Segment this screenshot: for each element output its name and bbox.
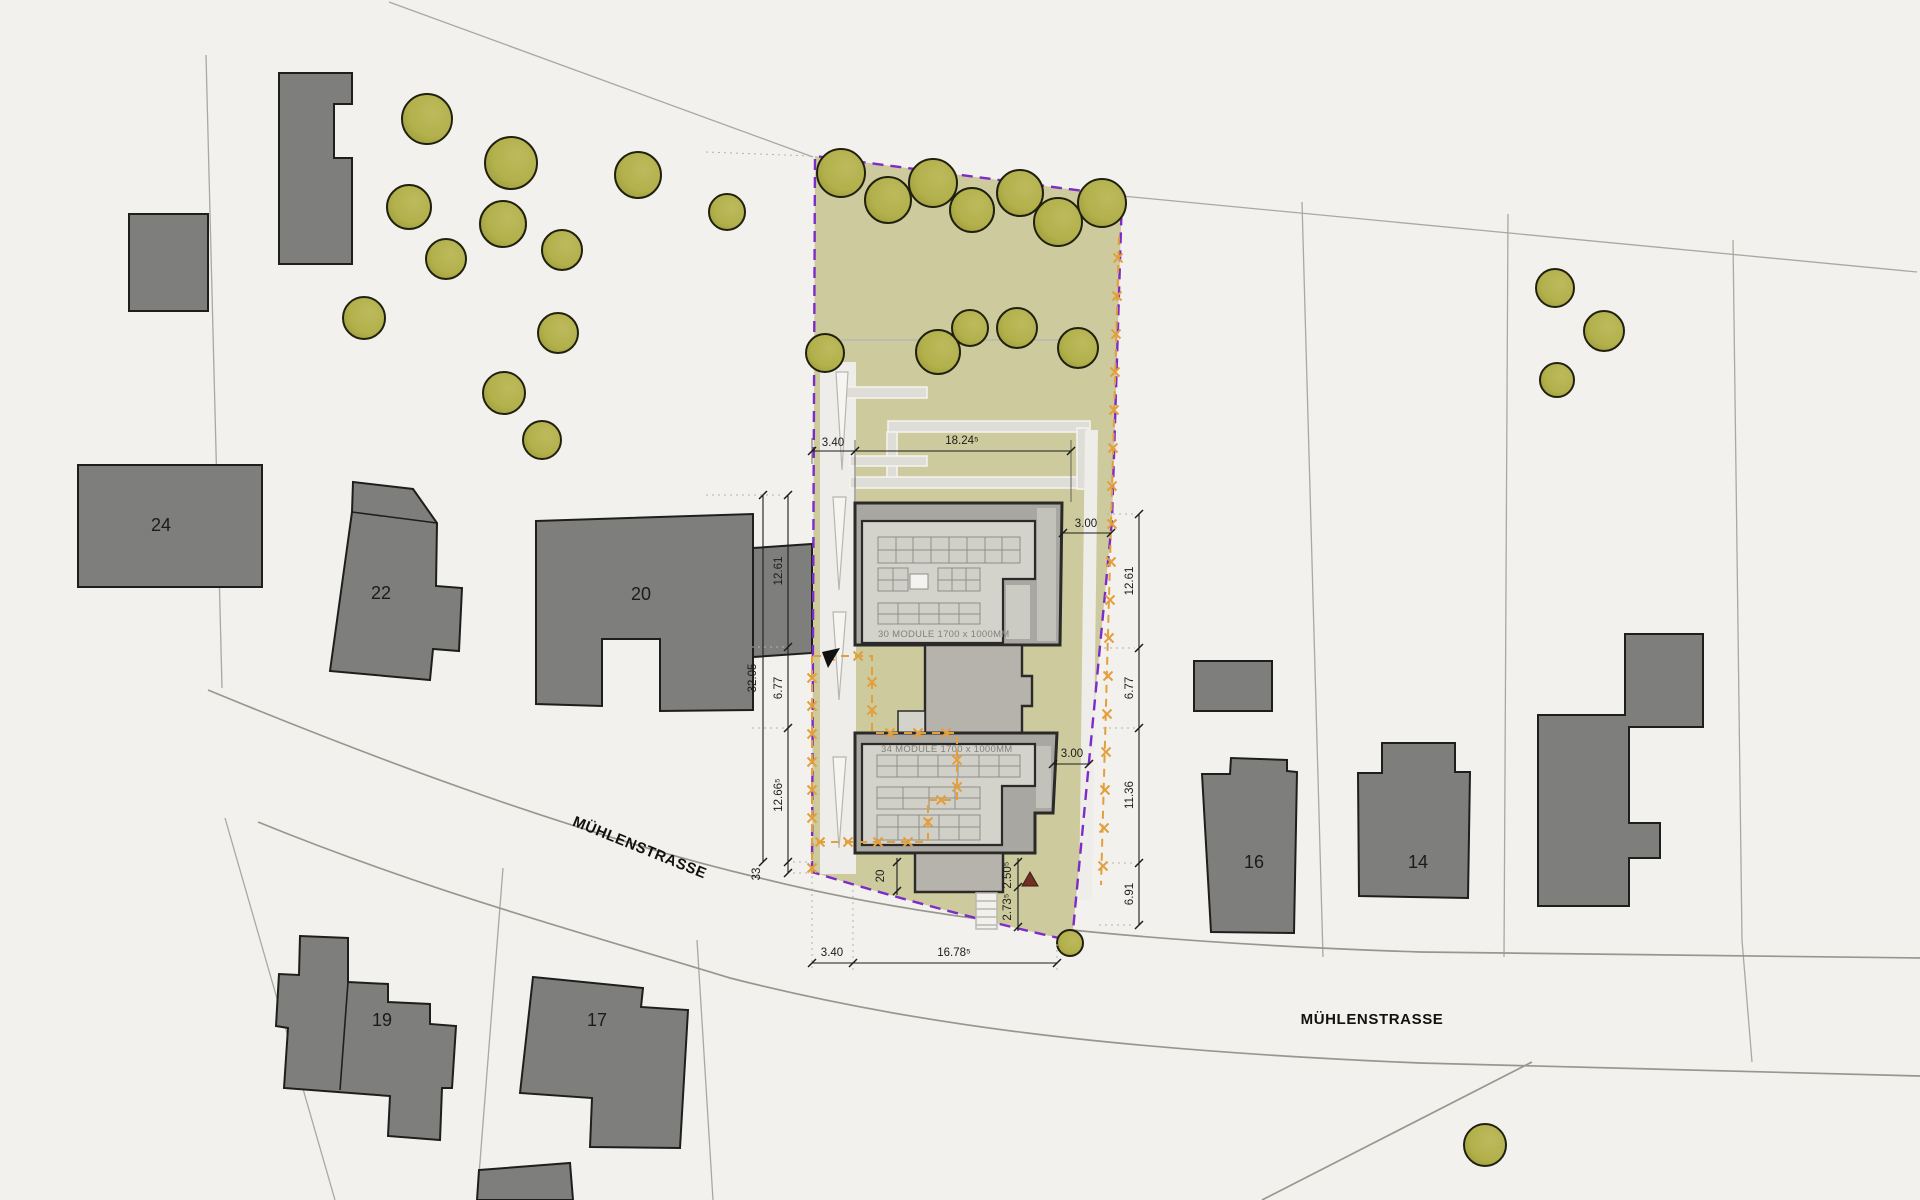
lower-building-terrace (915, 853, 1003, 892)
dim-right-seg1: 12.61 (1124, 567, 1136, 596)
house-number-19: 19 (372, 1010, 392, 1030)
tree-icon (806, 334, 844, 372)
tree-icon (865, 177, 911, 223)
house-number-17: 17 (587, 1010, 607, 1030)
building-19 (276, 936, 456, 1140)
dim-left-seg2: 6.77 (773, 677, 785, 699)
ladder-icon (976, 893, 997, 929)
tree-icon (1078, 179, 1126, 227)
tree-icon (615, 152, 661, 198)
building-bottom-partial (477, 1163, 573, 1200)
building-22 (330, 482, 462, 680)
dim-left-seg1: 12.61 (773, 557, 785, 586)
lower-module-label: 34 MODULE 1700 x 1000MM (881, 744, 1013, 755)
tree-icon (1464, 1124, 1506, 1166)
house-number-24: 24 (151, 515, 171, 535)
street-name-diagonal: MÜHLENSTRASSE (570, 813, 709, 882)
tree-icon (997, 170, 1043, 216)
tree-icon (483, 372, 525, 414)
tree-icon (709, 194, 745, 230)
building-topleft (279, 73, 352, 264)
tree-icon (542, 230, 582, 270)
tree-icon (1057, 930, 1083, 956)
dim-right-seg4: 6.91 (1124, 883, 1136, 905)
dim-bottom-offset: 3.40 (821, 947, 843, 959)
tree-icon (997, 308, 1037, 348)
dim-top-width: 18.24⁵ (945, 435, 979, 447)
tree-icon (480, 201, 526, 247)
dim-top-offset: 3.40 (822, 437, 844, 449)
tree-icon (485, 137, 537, 189)
building-14 (1358, 743, 1470, 898)
tree-icon (426, 239, 466, 279)
building-17 (520, 977, 688, 1148)
dim-bottom-width: 16.78⁵ (937, 947, 971, 959)
tree-icon (538, 313, 578, 353)
tree-icon (523, 421, 561, 459)
dim-entry-seg2: 2.73⁵ (1002, 893, 1014, 920)
plan-svg: 24 22 20 19 17 16 14 30 MODULE 1700 x 10… (0, 0, 1920, 1200)
tree-icon (1058, 328, 1098, 368)
tree-icon (1536, 269, 1574, 307)
tree-icon (952, 310, 988, 346)
building-right-large (1538, 634, 1703, 906)
dim-entry-seg1: 2.50⁵ (1002, 861, 1014, 888)
building-small-topleft (129, 214, 208, 311)
building-16 (1202, 758, 1297, 933)
dim-left-seg3: 12.66⁵ (773, 778, 785, 812)
house-number-20: 20 (631, 584, 651, 604)
tree-icon (950, 188, 994, 232)
site-plan: 24 22 20 19 17 16 14 30 MODULE 1700 x 10… (0, 0, 1920, 1200)
tree-icon (387, 185, 431, 229)
street-name-bottom: MÜHLENSTRASSE (1301, 1011, 1444, 1028)
house-number-16: 16 (1244, 852, 1264, 872)
dim-wall-thickness: 20 (875, 870, 887, 883)
tree-icon (1584, 311, 1624, 351)
dim-gap-lower: 3.00 (1061, 748, 1083, 760)
tree-icon (402, 94, 452, 144)
tree-icon (909, 159, 957, 207)
house-number-22: 22 (371, 583, 391, 603)
tree-icon (343, 297, 385, 339)
tree-icon (817, 149, 865, 197)
dim-gap-upper: 3.00 (1075, 518, 1097, 530)
building-20 (536, 514, 753, 711)
upper-module-label: 30 MODULE 1700 x 1000MM (878, 629, 1010, 640)
building-garage-16 (1194, 661, 1272, 711)
tree-icon (1540, 363, 1574, 397)
dim-left-total: 32.05 (747, 664, 759, 693)
connector-building (925, 645, 1032, 733)
dim-right-seg2: 6.77 (1124, 677, 1136, 699)
dim-right-seg3: 11.36 (1124, 781, 1136, 809)
dim-left-seg4: 33 (751, 868, 763, 881)
house-number-14: 14 (1408, 852, 1428, 872)
tree-icon (1034, 198, 1082, 246)
